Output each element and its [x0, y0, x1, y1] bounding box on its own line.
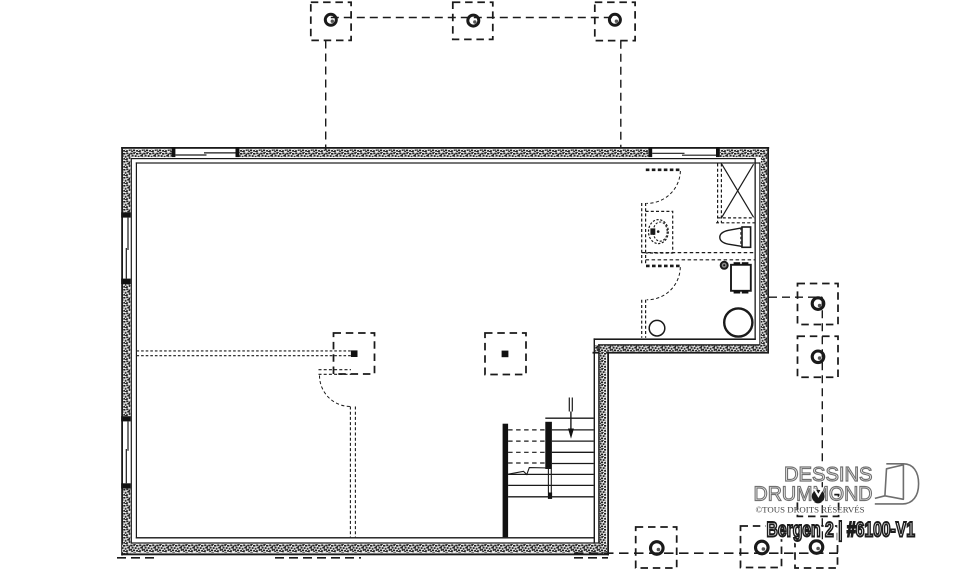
svg-text:Bergen 2 | #6100-V1: Bergen 2 | #6100-V1 — [767, 518, 916, 542]
svg-text:©TOUS DROITS RÉSERVÉS: ©TOUS DROITS RÉSERVÉS — [756, 504, 865, 514]
